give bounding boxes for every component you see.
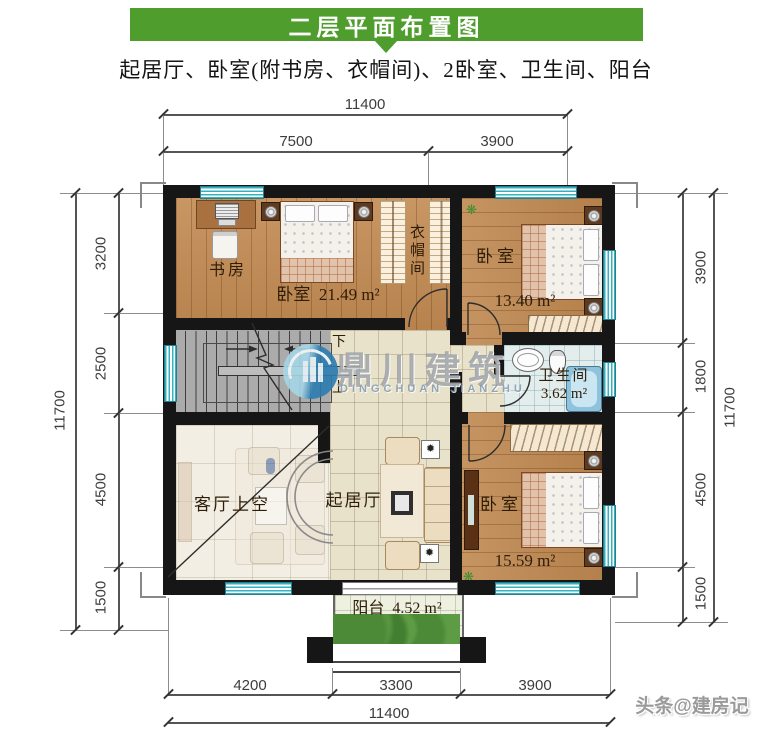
window xyxy=(603,250,616,320)
window xyxy=(495,582,580,595)
dim-extension xyxy=(168,598,169,694)
closet-rack xyxy=(380,200,406,284)
dim-extension xyxy=(610,598,611,694)
desk xyxy=(196,200,256,229)
dim-extension xyxy=(104,413,170,414)
side-table-plant: ✹ xyxy=(421,440,440,459)
dim-extension xyxy=(104,567,170,568)
corner-bracket xyxy=(140,572,142,598)
dim-line xyxy=(713,193,715,622)
window xyxy=(495,186,577,199)
study-label: 书房 xyxy=(200,262,256,280)
bed-blanket xyxy=(281,258,353,282)
balcony-column xyxy=(460,637,486,663)
dingchuan-logo-icon xyxy=(283,344,338,399)
wardrobe xyxy=(510,424,604,452)
bedroom-bottom-area: 15.59 m² xyxy=(478,552,572,571)
pillow xyxy=(583,477,599,509)
corner-bracket xyxy=(636,572,638,598)
window xyxy=(200,186,264,199)
balcony-railing xyxy=(333,661,460,673)
wall-stair-south xyxy=(176,412,330,425)
wall-bedroom-bottom-north-b xyxy=(504,412,602,424)
coffee-table xyxy=(391,491,413,515)
logo-building-bar xyxy=(310,357,316,382)
nightstand xyxy=(584,548,603,567)
corner-bracket xyxy=(612,596,638,598)
bedroom-bottom-label: 卧室 xyxy=(474,496,528,515)
corner-bracket xyxy=(140,182,142,208)
wall-family-bedroom-divider xyxy=(450,412,462,580)
corner-bracket xyxy=(140,596,166,598)
desk-chair xyxy=(212,231,238,259)
corner-bracket xyxy=(612,182,638,184)
dim-right-seg-1: 3900 xyxy=(693,238,708,298)
logo-building-bar xyxy=(318,363,323,382)
wall-cloakroom-bedroom-divider xyxy=(450,198,462,345)
dim-line xyxy=(163,151,567,153)
dim-left-seg-3: 4500 xyxy=(93,460,108,520)
bedroom-main-name: 卧室 xyxy=(276,285,310,304)
dim-top-total: 11400 xyxy=(315,96,415,113)
pillow xyxy=(583,512,599,544)
dim-extension xyxy=(104,313,170,314)
window xyxy=(603,505,616,567)
nightstand xyxy=(584,206,603,225)
corner-bracket xyxy=(140,182,166,184)
armchair xyxy=(385,437,420,465)
dim-left-total: 11700 xyxy=(52,381,67,441)
rug xyxy=(380,464,424,538)
floor-plan-page: 二层平面布置图 起居厅、卧室(附书房、衣帽间)、2卧室、卫生间、阳台 下 上 书… xyxy=(0,0,772,735)
pillow xyxy=(583,264,599,296)
balcony-sliding-door xyxy=(342,582,458,595)
dim-top-seg-2: 3900 xyxy=(447,133,547,150)
bed-bottom xyxy=(521,472,603,548)
window xyxy=(225,582,292,595)
pillow xyxy=(318,205,348,222)
plant-icon: ❋ xyxy=(466,203,477,216)
dim-left-seg-4: 1500 xyxy=(93,568,108,628)
dim-right-seg-2: 1800 xyxy=(693,347,708,407)
corner-bracket xyxy=(636,182,638,208)
sofa xyxy=(424,467,452,543)
dim-line xyxy=(682,193,684,622)
nightstand xyxy=(584,451,603,470)
bedroom-right-label: 卧室 xyxy=(470,248,524,267)
sofa xyxy=(248,447,280,475)
dim-left-seg-2: 2500 xyxy=(93,334,108,394)
dim-bottom-seg-3: 3900 xyxy=(485,677,585,694)
keyboard xyxy=(218,219,236,226)
dim-bottom-seg-1: 4200 xyxy=(200,677,300,694)
living-void-label: 客厅上空 xyxy=(186,496,278,515)
logo-building-bar xyxy=(303,361,308,382)
dim-line xyxy=(168,722,610,724)
bedroom-right-area: 13.40 m² xyxy=(478,292,572,311)
coffee-table-top xyxy=(395,495,409,511)
armchair xyxy=(385,541,420,570)
cloakroom-label: 衣帽间 xyxy=(404,216,424,286)
side-table-plant: ✹ xyxy=(420,544,439,563)
dim-top-seg-1: 7500 xyxy=(246,133,346,150)
balcony-name: 阳台 xyxy=(352,600,384,617)
wall-bedroom-main-south xyxy=(176,318,405,330)
dim-line xyxy=(168,694,610,696)
pillow xyxy=(583,229,599,261)
watermark-english: DINGCHUAN JIANZHU xyxy=(340,383,570,395)
wall-living-family-stub xyxy=(318,425,330,463)
banner-pointer-triangle xyxy=(374,40,398,53)
credit-watermark: 头条@建房记 xyxy=(617,691,767,718)
dim-right-seg-3: 4500 xyxy=(693,460,708,520)
sofa xyxy=(250,532,284,564)
bed-main xyxy=(280,201,354,283)
dim-right-seg-4: 1500 xyxy=(693,564,708,624)
dim-extension xyxy=(460,668,461,694)
dim-line xyxy=(75,193,77,630)
dim-right-total: 11700 xyxy=(722,378,737,438)
armchair xyxy=(295,525,325,555)
bedroom-main-area: 21.49 m² xyxy=(319,285,380,304)
page-title: 二层平面布置图 xyxy=(289,8,485,42)
dim-bottom-total: 11400 xyxy=(339,705,439,722)
balcony-column xyxy=(307,637,333,663)
balcony-greenery xyxy=(333,614,460,644)
balcony-label: 阳台 4.52 m² xyxy=(336,600,458,618)
computer-monitor xyxy=(215,203,239,219)
bed-right xyxy=(521,224,603,300)
pillow xyxy=(285,205,315,222)
person-figure xyxy=(266,458,275,474)
wall-bedroom-bottom-north-a xyxy=(462,412,468,424)
subtitle: 起居厅、卧室(附书房、衣帽间)、2卧室、卫生间、阳台 xyxy=(0,54,772,84)
window xyxy=(164,345,177,402)
dim-extension xyxy=(428,151,429,185)
nightstand xyxy=(354,202,373,221)
nightstand xyxy=(261,202,280,221)
bed-blanket xyxy=(522,225,546,299)
bedroom-main-label: 卧室 21.49 m² xyxy=(258,286,398,305)
wardrobe xyxy=(528,315,604,333)
family-room-label: 起居厅 xyxy=(322,492,386,511)
balcony-area: 4.52 m² xyxy=(392,600,441,617)
window xyxy=(603,362,616,397)
dim-bottom-seg-2: 3300 xyxy=(346,677,446,694)
dim-line xyxy=(163,114,567,116)
title-banner: 二层平面布置图 xyxy=(130,8,643,41)
dim-left-seg-1: 3200 xyxy=(93,224,108,284)
